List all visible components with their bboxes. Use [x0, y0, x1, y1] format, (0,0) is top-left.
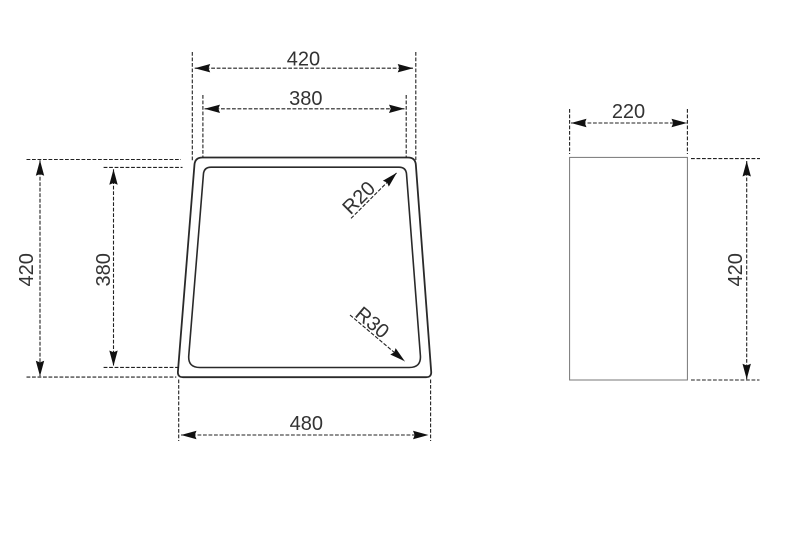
- svg-text:220: 220: [612, 101, 645, 123]
- svg-text:480: 480: [290, 413, 323, 435]
- svg-text:420: 420: [287, 49, 320, 71]
- svg-text:420: 420: [16, 253, 38, 286]
- svg-text:380: 380: [289, 88, 322, 110]
- svg-text:420: 420: [725, 253, 747, 286]
- svg-text:380: 380: [93, 253, 115, 286]
